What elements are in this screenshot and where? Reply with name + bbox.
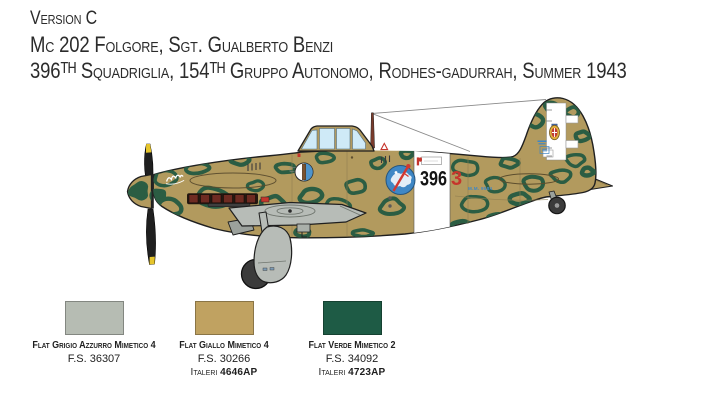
individual-aircraft-number: 3 [451,168,462,190]
antenna-assembly [371,100,546,152]
rivet-dot [388,204,391,207]
antenna-wire-upper [372,100,546,114]
rivet-dot [351,156,353,158]
italeri-label: Italeri [191,367,221,378]
rivet-dot [388,196,391,199]
blade-tip-lower [150,257,155,265]
color-chip [323,301,382,335]
propeller-blade-lower [146,209,155,265]
instruction-sheet-page: Version C Mc 202 Folgore, Sgt. Gualberto… [0,0,707,400]
nose-emblem-icon [295,163,313,181]
exhaust-stacks [187,193,258,204]
italeri-number: 4646AP [220,367,257,378]
italeri-code: Italeri 4723AP [275,366,429,379]
color-chip [195,301,254,335]
italeri-number: 4723AP [348,367,385,378]
red-stencil-dot [298,154,301,158]
serial-number: M.M. 9584 [468,186,493,191]
paint-name: Flat Verde Mimetico 2 [283,339,422,352]
bomb-rack [297,224,310,232]
italeri-label: Italeri [319,367,349,378]
canopy-window [320,129,335,150]
wing-and-landing-gear [208,197,366,289]
paint-reference: Flat Grigio Azzurro Mimetico 4 F.S. 3630… [0,300,707,400]
canopy [298,126,374,151]
wing-edge [229,203,366,227]
paint-swatch-verde: Flat Verde Mimetico 2 F.S. 34092 Italeri… [275,300,429,379]
paint-name: Flat Grigio Azzurro Mimetico 4 [25,339,164,352]
camo-blob [488,214,507,222]
paint-name: Flat Giallo Mimetico 4 [155,339,294,352]
squadron-number: 396 [420,167,447,191]
fs-code: F.S. 34092 [275,352,429,366]
canopy-window [337,129,351,150]
color-chip [65,301,124,335]
wing-root-light [261,197,269,202]
